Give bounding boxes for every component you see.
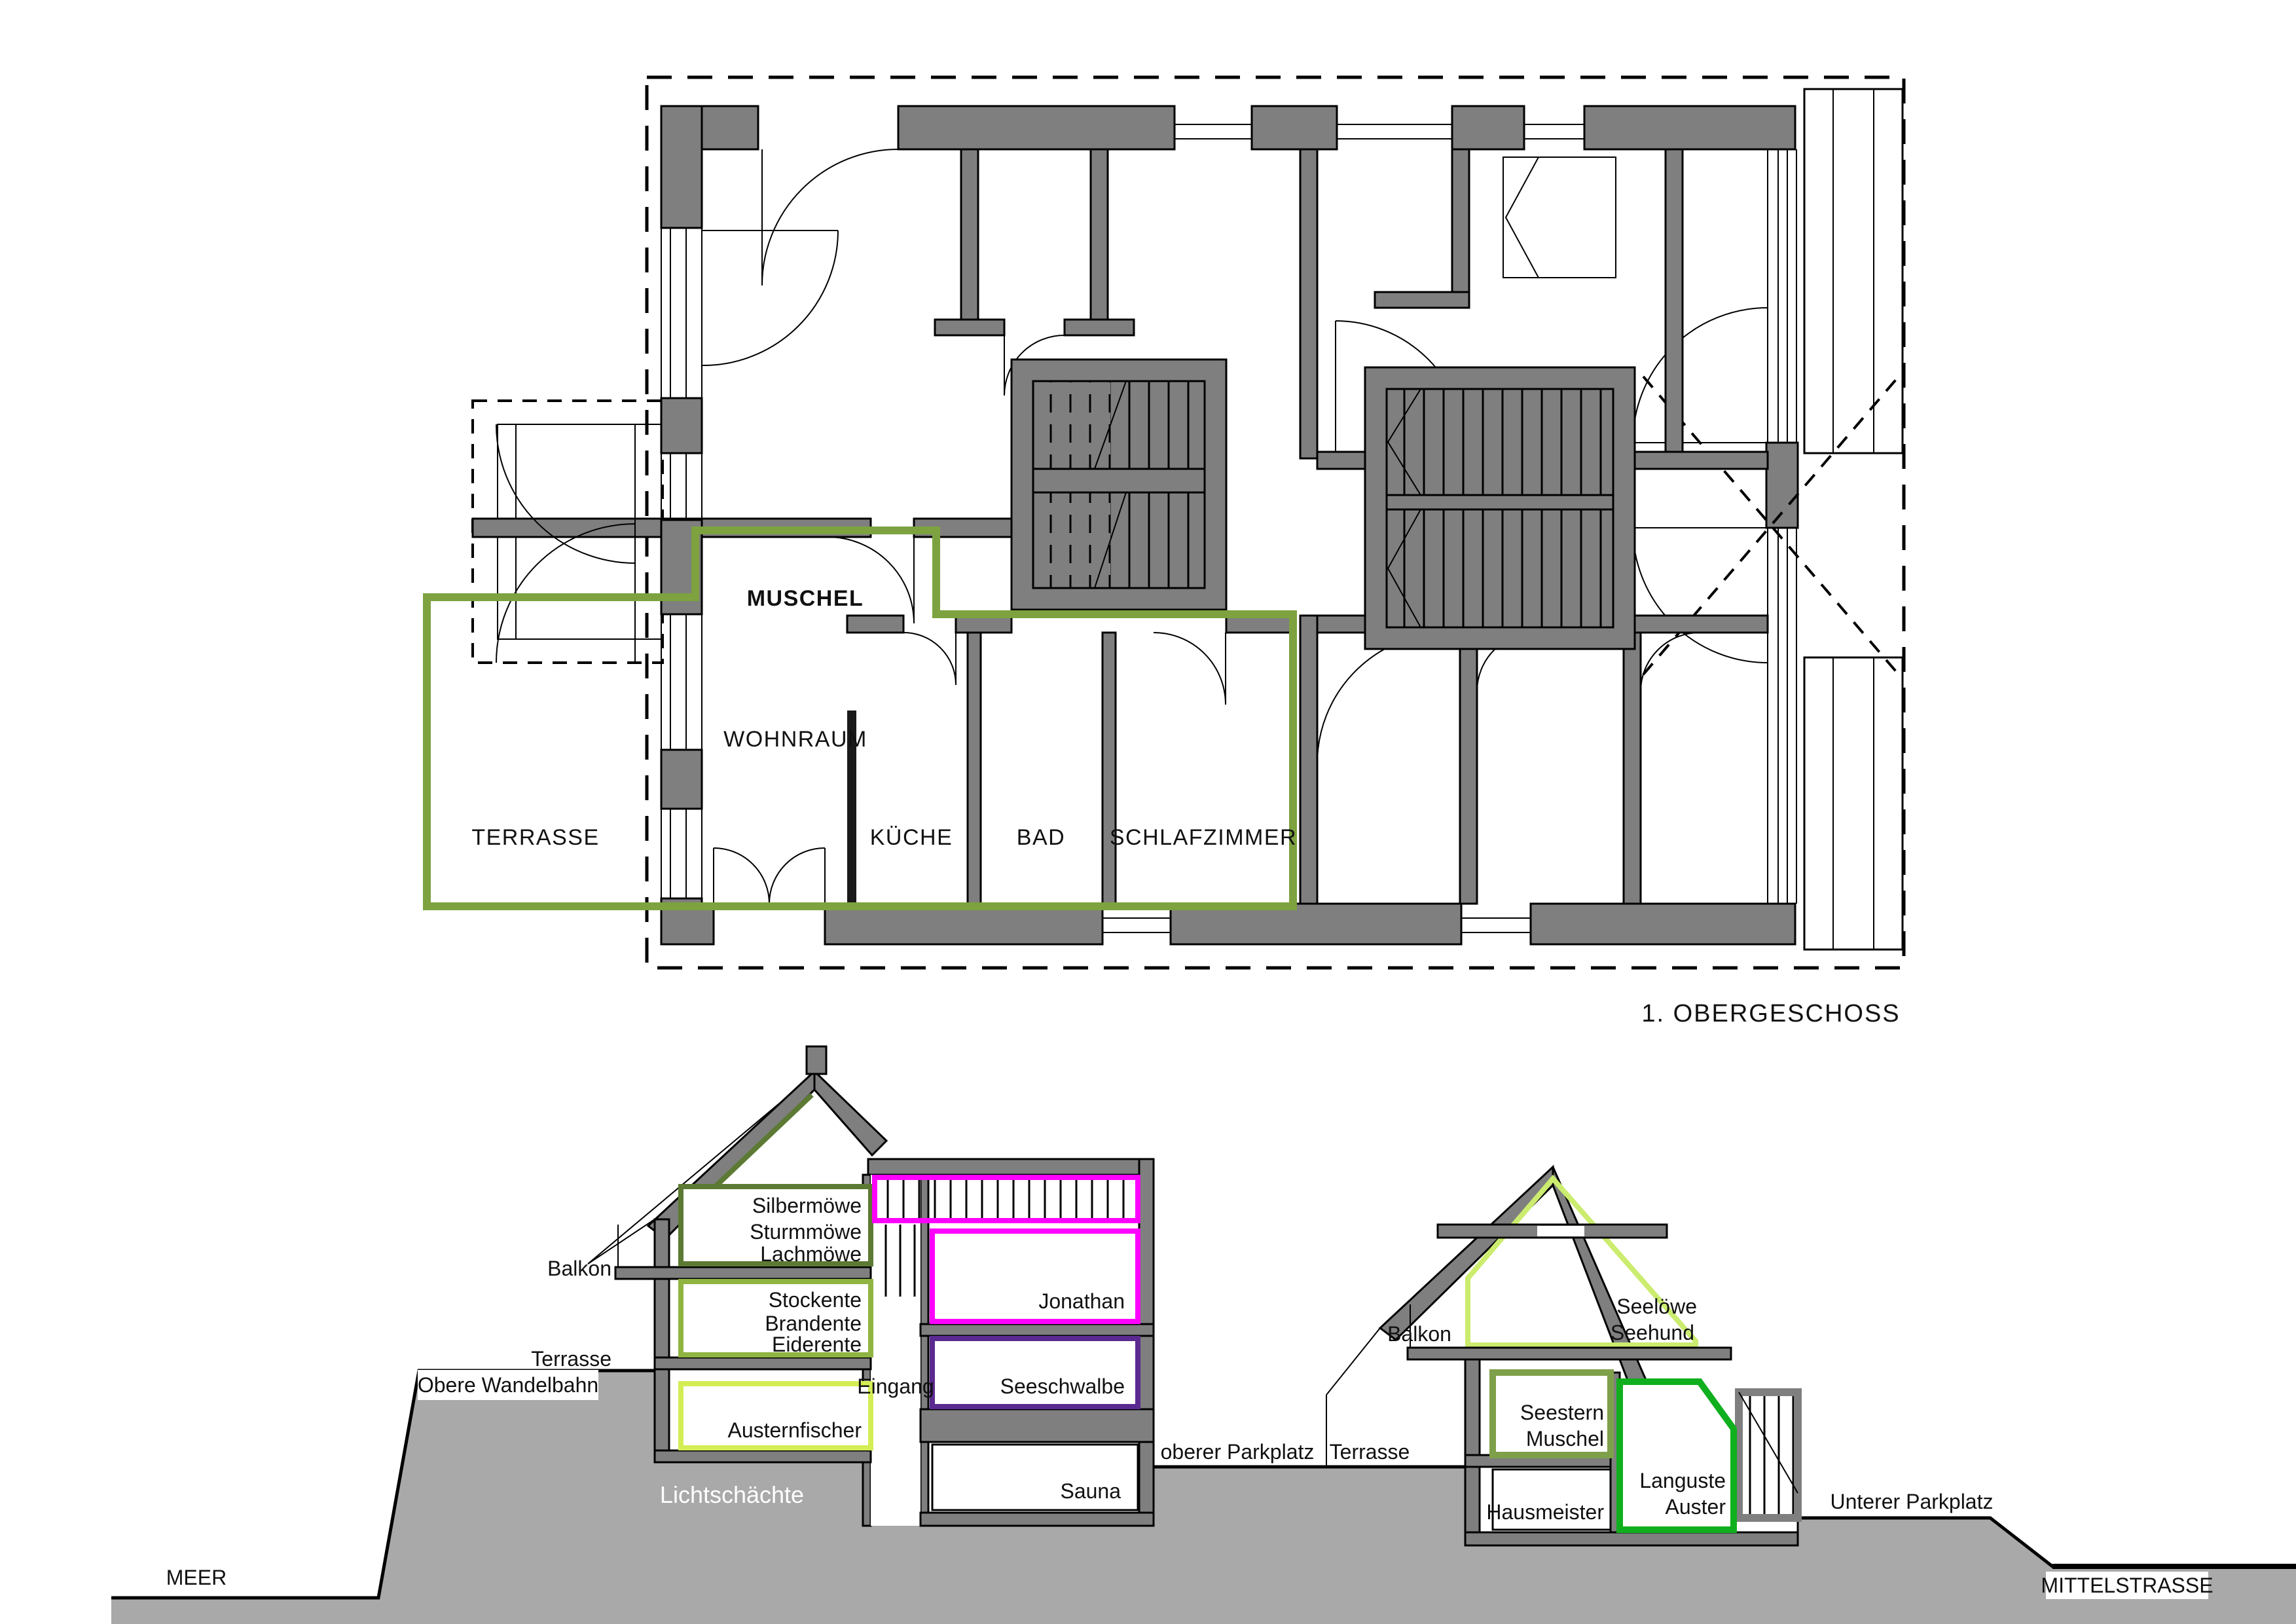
street-surface — [2052, 1564, 2296, 1569]
label-seehund: Seehund — [1611, 1321, 1694, 1344]
label-seestern: Seestern — [1520, 1401, 1604, 1424]
label-jonathan: Jonathan — [1038, 1289, 1125, 1313]
floor-plan: MUSCHEL WOHNRAUM TERRASSE KÜCHE BAD SCHL… — [427, 77, 1904, 1027]
label-balkon-right: Balkon — [1387, 1322, 1451, 1346]
label-stockente: Stockente — [769, 1288, 862, 1312]
drawing-sheet: MUSCHEL WOHNRAUM TERRASSE KÜCHE BAD SCHL… — [0, 0, 2296, 1624]
flat-roof — [868, 1159, 1154, 1175]
label-kueche: KÜCHE — [870, 825, 953, 850]
chimney — [807, 1046, 826, 1074]
label-sauna: Sauna — [1060, 1479, 1121, 1503]
label-auster: Auster — [1666, 1495, 1726, 1519]
label-eiderente: Eiderente — [772, 1333, 862, 1356]
label-meer: MEER — [166, 1566, 227, 1589]
balkon-slab-right — [1408, 1348, 1731, 1359]
balkon-slab-left — [615, 1267, 871, 1279]
label-sturmmoewe: Sturmmöwe — [750, 1220, 862, 1244]
external-stair-enclosure — [1739, 1392, 1798, 1518]
label-lichtschaechte: Lichtschächte — [660, 1481, 804, 1508]
label-terrasse-right: Terrasse — [1330, 1440, 1410, 1464]
plan-outer-wall-right — [1633, 149, 1798, 904]
plan-outer-wall-top — [661, 106, 1795, 286]
plan-stair-core-right — [1365, 367, 1635, 649]
terrasse-slab-left — [655, 1357, 871, 1369]
label-seeschwalbe: Seeschwalbe — [1000, 1375, 1125, 1398]
label-terrasse-left: Terrasse — [531, 1347, 611, 1371]
label-schlafzimmer: SCHLAFZIMMER — [1110, 825, 1297, 850]
label-obere-wandelbahn: Obere Wandelbahn — [418, 1373, 598, 1397]
label-lachmoewe: Lachmöwe — [760, 1242, 862, 1266]
label-mittelstrasse: MITTELSTRASSE — [2041, 1574, 2213, 1597]
label-terrasse-plan: TERRASSE — [471, 825, 599, 850]
label-balkon-left: Balkon — [547, 1257, 611, 1280]
label-apartment-muschel: MUSCHEL — [747, 586, 864, 611]
label-brandente: Brandente — [765, 1312, 862, 1335]
label-languste: Languste — [1639, 1469, 1726, 1492]
label-hausmeister: Hausmeister — [1486, 1500, 1604, 1524]
label-oberer-parkplatz: oberer Parkplatz — [1161, 1440, 1315, 1464]
label-unterer-parkplatz: Unterer Parkplatz — [1831, 1490, 1994, 1513]
label-seeloewe: Seelöwe — [1616, 1295, 1697, 1318]
plan-stair-core-left — [1011, 360, 1226, 610]
label-eingang: Eingang — [857, 1375, 934, 1398]
architectural-drawing: MUSCHEL WOHNRAUM TERRASSE KÜCHE BAD SCHL… — [0, 0, 2296, 1624]
label-floor-caption: 1. OBERGESCHOSS — [1641, 1000, 1900, 1027]
section-drawing: Silbermöwe Sturmmöwe Lachmöwe Stockente … — [111, 1046, 2296, 1624]
label-silbermoewe: Silbermöwe — [752, 1194, 862, 1217]
label-bad: BAD — [1017, 825, 1065, 850]
jonathan-stair-band — [875, 1177, 1138, 1221]
label-muschel-section: Muschel — [1526, 1427, 1604, 1450]
label-austernfischer: Austernfischer — [727, 1418, 862, 1442]
label-wohnraum: WOHNRAUM — [723, 727, 867, 752]
jonathan-stair-hatch — [877, 1225, 923, 1297]
